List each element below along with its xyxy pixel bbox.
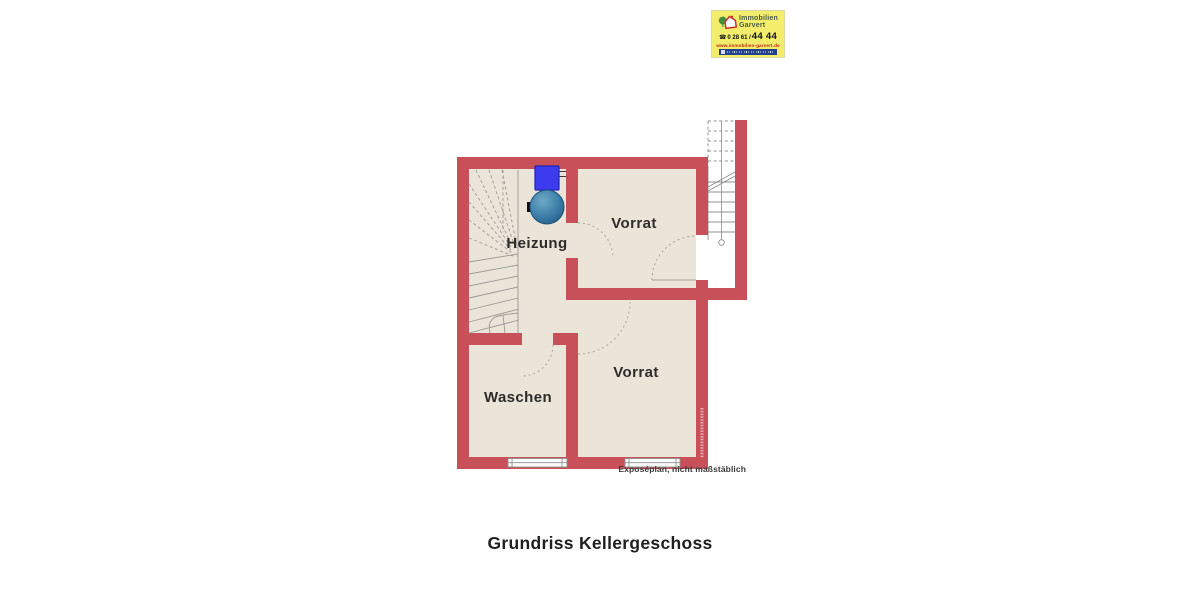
- wall-left: [457, 157, 469, 469]
- wall-vorrat-right-upper: [696, 157, 708, 235]
- page: { "logo": { "name_line1": "Immobilien", …: [0, 0, 1200, 600]
- room-label-vorrat-top: Vorrat: [611, 215, 656, 232]
- exterior-staircase: [708, 121, 735, 245]
- wall-divider-upper: [566, 157, 578, 223]
- room-label-heizung: Heizung: [506, 235, 567, 252]
- room-label-waschen: Waschen: [484, 389, 552, 406]
- wall-waschen-top: [457, 333, 522, 345]
- page-title: Grundriss Kellergeschoss: [0, 533, 1200, 554]
- wall-top: [457, 157, 708, 169]
- stair-walk-line-end: [719, 240, 725, 246]
- room-label-vorrat-bottom: Vorrat: [613, 364, 658, 381]
- plan-disclaimer: Exposéplan, nicht maßstäblich: [560, 464, 746, 474]
- wall-waschen-right: [566, 333, 578, 469]
- wall-waschen-top-stub: [553, 333, 566, 345]
- wall-stair-right: [735, 120, 747, 300]
- wall-middle: [566, 288, 747, 300]
- window-waschen: [508, 459, 567, 468]
- boiler: [535, 166, 559, 190]
- floor-plan: Heizung Vorrat Vorrat Waschen: [0, 0, 1200, 600]
- wall-right-lower: [696, 280, 708, 469]
- tank: [530, 190, 564, 224]
- wall-divider-upper-stub: [566, 258, 578, 300]
